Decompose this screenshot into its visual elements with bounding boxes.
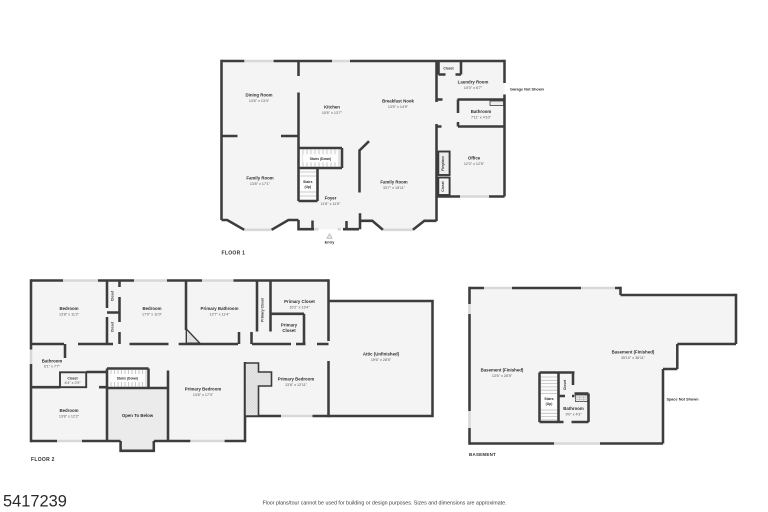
svg-text:13'8" x 12'11": 13'8" x 12'11"	[285, 383, 308, 387]
svg-text:13'8" x 13'4": 13'8" x 13'4"	[249, 99, 270, 103]
svg-text:Bathroom: Bathroom	[471, 109, 492, 114]
svg-text:Family Room: Family Room	[380, 180, 407, 185]
svg-text:13'8" x 11'2": 13'8" x 11'2"	[59, 313, 80, 317]
svg-text:Primary Closet: Primary Closet	[284, 299, 315, 304]
svg-text:10'0" x 6'7": 10'0" x 6'7"	[464, 86, 483, 90]
svg-text:11'8" x 11'0": 11'8" x 11'0"	[321, 202, 341, 206]
svg-text:10'6" x 13'7": 10'6" x 13'7"	[322, 111, 343, 115]
svg-text:10'2" x 13'4": 10'2" x 13'4"	[289, 306, 310, 310]
svg-text:19'6" x 28'5": 19'6" x 28'5"	[371, 358, 392, 362]
svg-text:4'4" x 2'9": 4'4" x 2'9"	[64, 381, 81, 385]
svg-text:(Up): (Up)	[304, 185, 311, 189]
svg-text:Laundry Room: Laundry Room	[458, 80, 489, 85]
svg-text:Primary Bedroom: Primary Bedroom	[278, 377, 315, 382]
svg-text:5417239: 5417239	[3, 493, 67, 511]
svg-text:Stairs (Down): Stairs (Down)	[117, 377, 139, 381]
svg-text:Dining Room: Dining Room	[245, 93, 272, 98]
svg-text:FLOOR 1: FLOOR 1	[222, 251, 246, 257]
svg-text:Office: Office	[468, 156, 481, 161]
svg-text:Bedroom: Bedroom	[59, 408, 78, 413]
svg-text:Closet: Closet	[441, 181, 445, 192]
svg-text:Basement (Finished): Basement (Finished)	[481, 368, 524, 373]
svg-text:Floor plans/tour cannot be use: Floor plans/tour cannot be used for buil…	[262, 500, 506, 506]
svg-text:Closet: Closet	[67, 377, 78, 381]
svg-text:Family Room: Family Room	[246, 176, 273, 181]
svg-text:Primary: Primary	[281, 323, 298, 328]
svg-text:Closet: Closet	[282, 328, 296, 333]
svg-text:Primary Bedroom: Primary Bedroom	[185, 387, 222, 392]
svg-text:7'11" x 4'10": 7'11" x 4'10"	[471, 116, 492, 120]
svg-text:Fireplace: Fireplace	[441, 156, 445, 171]
svg-text:9'0" x 4'3": 9'0" x 4'3"	[565, 413, 582, 417]
svg-text:Stairs: Stairs	[544, 397, 553, 401]
svg-text:Bathroom: Bathroom	[42, 359, 63, 364]
svg-text:Space Not Shown: Space Not Shown	[666, 398, 699, 402]
svg-text:Closet: Closet	[111, 290, 115, 301]
svg-text:Breakfast Nook: Breakfast Nook	[382, 99, 414, 104]
svg-text:Kitchen: Kitchen	[324, 105, 340, 110]
svg-text:Primary Closet: Primary Closet	[261, 297, 265, 321]
svg-text:12'7" x 11'4": 12'7" x 11'4"	[210, 313, 231, 317]
svg-text:13'6" x 28'5": 13'6" x 28'5"	[492, 374, 513, 378]
svg-text:Closet: Closet	[563, 379, 567, 390]
svg-text:Basement (Finished): Basement (Finished)	[612, 350, 655, 355]
svg-text:Stairs: Stairs	[303, 180, 312, 184]
svg-text:Foyer: Foyer	[325, 196, 337, 201]
svg-text:Open To Below: Open To Below	[122, 413, 154, 418]
svg-text:Garage Not Shown: Garage Not Shown	[510, 88, 545, 92]
svg-text:12'3" x 12'5": 12'3" x 12'5"	[464, 162, 485, 166]
svg-text:Closet: Closet	[111, 321, 115, 332]
svg-text:13'5" x 14'9": 13'5" x 14'9"	[388, 105, 409, 109]
svg-text:33'7" x 15'11": 33'7" x 15'11"	[383, 186, 406, 190]
svg-text:17'0" x 11'0": 17'0" x 11'0"	[142, 313, 163, 317]
svg-text:Attic (Unfinished): Attic (Unfinished)	[363, 352, 400, 357]
svg-text:(Up): (Up)	[546, 402, 553, 406]
svg-text:13'8" x 17'3": 13'8" x 17'3"	[193, 393, 214, 397]
svg-text:35'10" x 36'11": 35'10" x 36'11"	[621, 356, 646, 360]
svg-text:6'1" x 7'7": 6'1" x 7'7"	[44, 365, 61, 369]
svg-text:FLOOR 2: FLOOR 2	[31, 457, 55, 463]
svg-text:Bedroom: Bedroom	[59, 306, 78, 311]
svg-text:Closet: Closet	[443, 67, 454, 71]
svg-text:13'8" x 12'2": 13'8" x 12'2"	[59, 415, 80, 419]
svg-text:13'8" x 17'1": 13'8" x 17'1"	[250, 182, 271, 186]
svg-text:Bedroom: Bedroom	[142, 306, 161, 311]
svg-text:BASEMENT: BASEMENT	[469, 452, 496, 457]
svg-text:Entry: Entry	[325, 241, 336, 245]
svg-text:Bathroom: Bathroom	[563, 406, 584, 411]
svg-text:Stairs (Down): Stairs (Down)	[310, 157, 332, 161]
svg-text:Primary Bathroom: Primary Bathroom	[201, 306, 239, 311]
